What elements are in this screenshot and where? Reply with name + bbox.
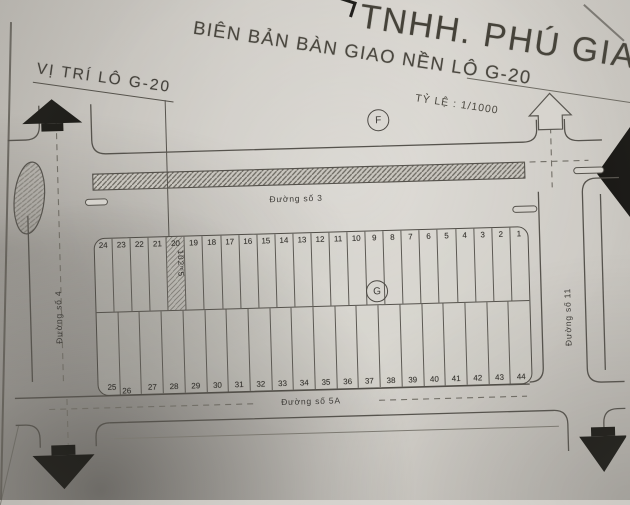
plot-cell: 3 [474, 228, 494, 301]
plot-cell: 19 [185, 236, 205, 309]
plot-cell: 38 [379, 305, 403, 388]
traffic-island [11, 161, 48, 236]
plot-cell: 13 [293, 233, 313, 306]
document-title: BIÊN BẢN BÀN GIAO NỀN LÔ G-20 [192, 17, 533, 89]
plot-number: 44 [517, 372, 526, 381]
plot-cell: 28 [162, 311, 186, 394]
plot-number: 15 [261, 236, 270, 245]
plot-number: 33 [278, 379, 287, 388]
plot-cell: 35 [314, 306, 338, 389]
plot-number: 26 [122, 386, 131, 395]
plot-number: 29 [191, 381, 200, 390]
plot-number: 22 [135, 240, 144, 249]
plot-cell: 15 [257, 234, 277, 307]
plot-number: 6 [426, 232, 431, 241]
plot-block: 24 23 22 21 20 19 18 17 16 15 [93, 226, 532, 396]
plot-cell: 27 [140, 311, 164, 394]
plot-cell: 5 [438, 229, 458, 302]
north-arrow-top-left-icon [22, 98, 83, 124]
plot-cell: 4 [456, 229, 476, 302]
plot-cell: 12 [311, 233, 331, 306]
plot-cell: 11 [329, 232, 349, 305]
plot-number: 43 [495, 373, 504, 382]
plot-cell: 42 [465, 302, 489, 385]
plot-cell: 16 [239, 235, 259, 308]
road-top-label: Đường số 3 [269, 193, 323, 204]
plot-cell: 1 [510, 227, 529, 300]
plot-cell: 34 [292, 307, 316, 390]
plot-cell: 23 [113, 238, 133, 311]
plot-cell: 43 [487, 302, 511, 385]
plot-cell: 33 [270, 308, 294, 391]
plot-number: 5 [444, 231, 449, 240]
highlighted-plot-area-label: 102ᵐ5 [176, 250, 186, 278]
plot-number: 32 [256, 379, 265, 388]
plot-cell: 30 [205, 310, 229, 393]
plot-number: 31 [235, 380, 244, 389]
plot-cell: 6 [420, 230, 440, 303]
plot-cell: 26 [118, 312, 142, 395]
plot-number: 42 [473, 373, 482, 382]
plot-cell: 7 [402, 230, 422, 303]
plot-row-top: 24 23 22 21 20 19 18 17 16 15 [94, 227, 529, 313]
plot-number: 24 [99, 241, 108, 250]
plot-number: 18 [207, 238, 216, 247]
plot-number: 39 [408, 375, 417, 384]
plot-number: 11 [334, 234, 343, 243]
plot-number: 34 [300, 378, 309, 387]
plot-cell: 25 [97, 313, 121, 396]
plot-number: 30 [213, 381, 222, 390]
plot-cell: 18 [203, 236, 223, 309]
plot-number: 21 [153, 239, 162, 248]
plot-number: 1 [516, 229, 521, 238]
plot-number: 13 [297, 235, 306, 244]
plot-number: 14 [279, 236, 288, 245]
plot-number: 12 [315, 235, 324, 244]
site-map: 24 23 22 21 20 19 18 17 16 15 [5, 82, 628, 499]
plot-number: 4 [462, 231, 467, 240]
plot-number: 25 [107, 383, 116, 392]
ink-mark [328, 0, 357, 17]
south-arrow-bottom-right-icon [579, 435, 627, 472]
plot-number: 9 [372, 233, 377, 242]
plot-number: 19 [189, 238, 198, 247]
plot-number: 8 [390, 233, 395, 242]
plot-number: 28 [170, 382, 179, 391]
plot-number: 7 [408, 232, 413, 241]
plot-cell: 36 [335, 306, 359, 389]
plot-row-bottom: 25 26 27 28 29 30 31 32 33 34 [97, 301, 532, 395]
plot-number: 38 [386, 376, 395, 385]
north-arrow-top-right-icon [529, 93, 572, 130]
plot-cell: 31 [227, 309, 251, 392]
photographed-site-plan-document: { "header": { "company": "TNHH. PHÚ GIA"… [0, 0, 630, 500]
plot-number: 27 [148, 382, 157, 391]
plot-cell: 29 [183, 310, 207, 393]
plot-number: 10 [352, 234, 361, 243]
plot-number: 23 [117, 240, 126, 249]
plot-cell: 41 [444, 303, 468, 386]
plot-cell: 32 [248, 308, 272, 391]
plot-cell: 37 [357, 305, 381, 388]
plot-number: 37 [365, 376, 374, 385]
plot-cell: 17 [221, 235, 241, 308]
plot-cell: 24 [94, 239, 114, 312]
south-arrow-bottom-left-icon [33, 454, 96, 490]
plot-cell: 44 [509, 301, 532, 384]
plot-cell: 2 [492, 228, 512, 301]
plot-cell: 10 [347, 232, 367, 305]
plot-number: 36 [343, 377, 352, 386]
sheet-edge-line [583, 4, 624, 41]
plot-number: 3 [480, 230, 485, 239]
plot-cell: 40 [422, 303, 446, 386]
plot-number: 40 [430, 375, 439, 384]
plot-cell: 39 [400, 304, 424, 387]
plot-number: 17 [225, 237, 234, 246]
plot-number: 16 [243, 237, 252, 246]
plot-number: 2 [498, 230, 503, 239]
plot-cell: 21 [149, 237, 169, 310]
plot-cell: 22 [131, 238, 151, 311]
plot-number: 41 [452, 374, 461, 383]
plot-number: 35 [321, 378, 330, 387]
road-bottom-label: Đường số 5A [281, 395, 341, 407]
plot-cell: 14 [275, 234, 295, 307]
plot-number: 20 [171, 239, 180, 248]
